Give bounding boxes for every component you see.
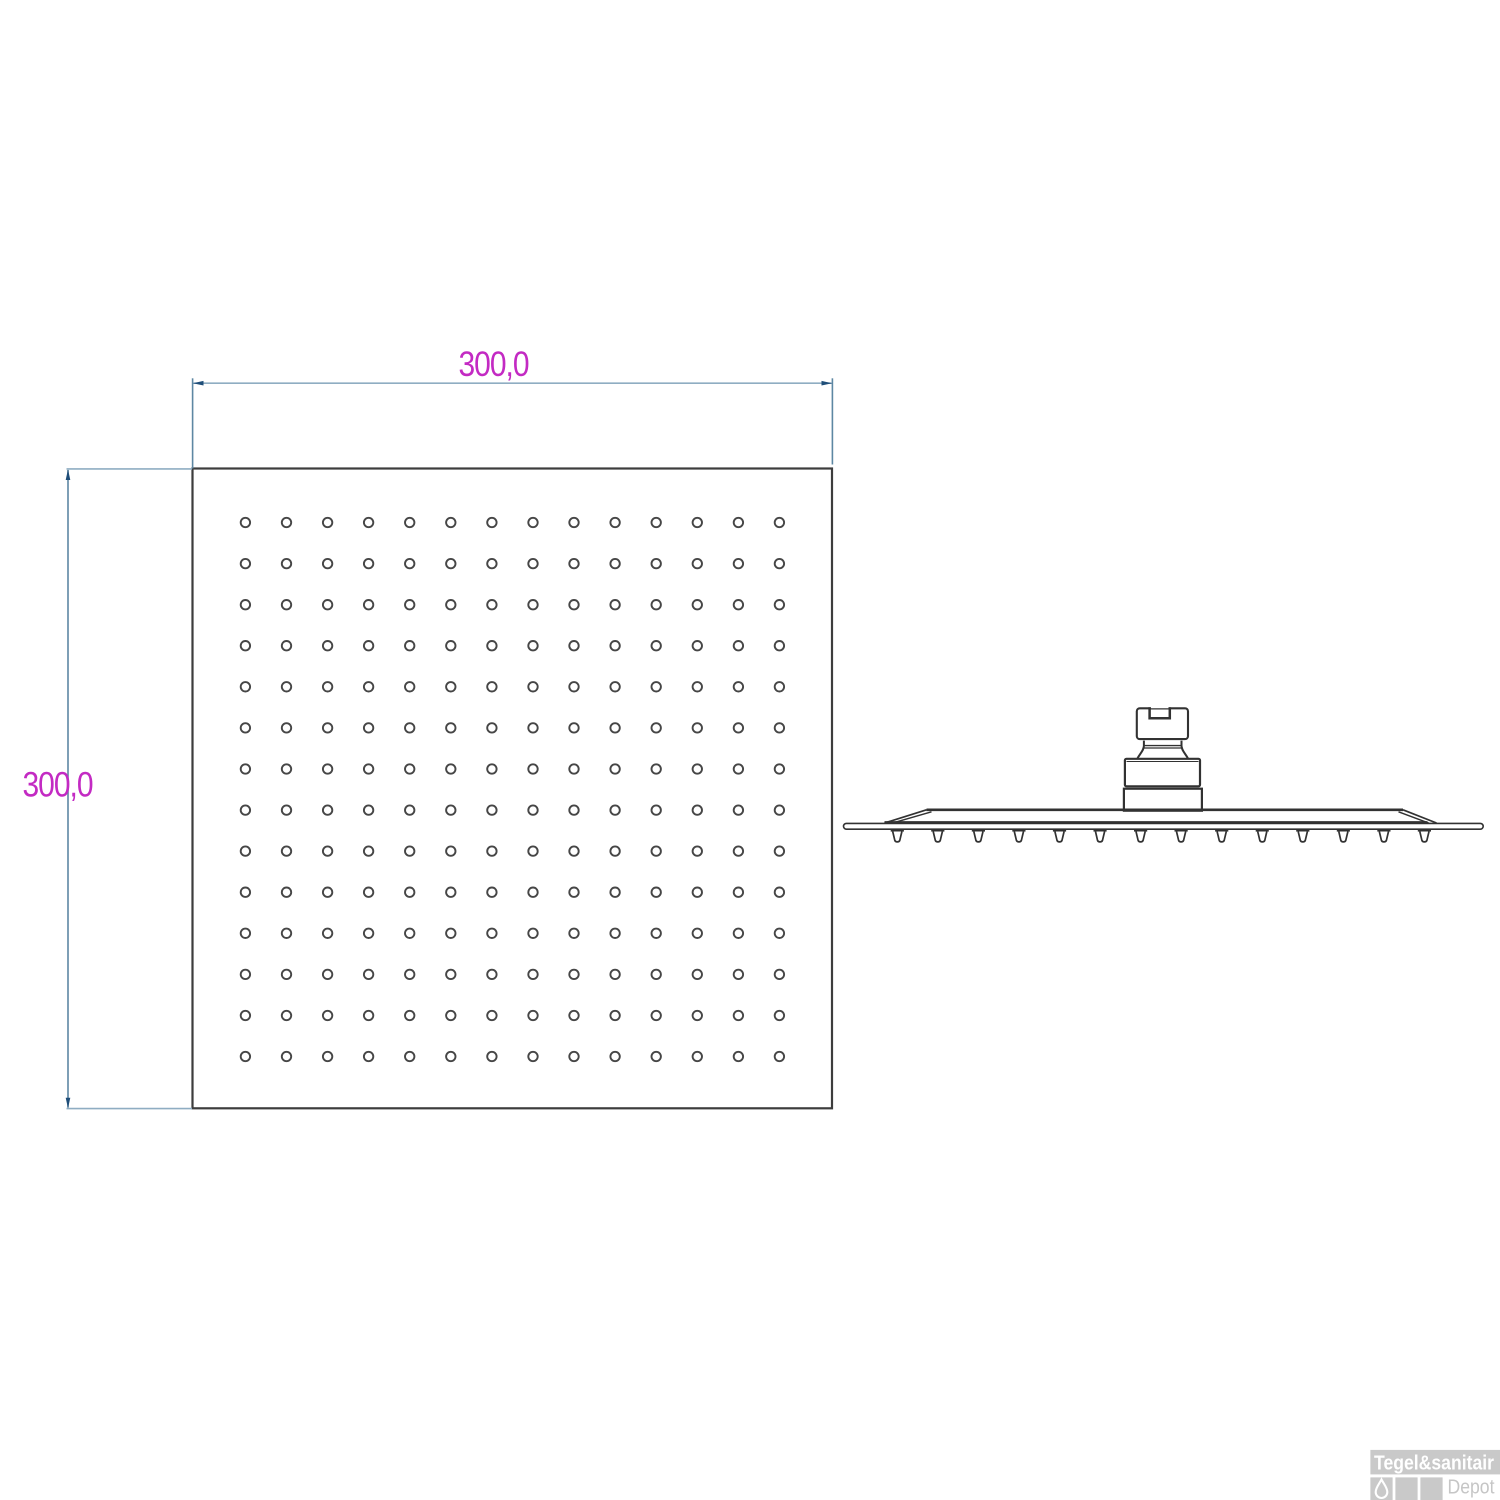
svg-text:300,0: 300,0	[458, 344, 528, 384]
svg-text:Depot: Depot	[1448, 1476, 1495, 1499]
svg-text:Tegel&sanitair: Tegel&sanitair	[1374, 1453, 1494, 1475]
svg-text:300,0: 300,0	[22, 764, 92, 804]
